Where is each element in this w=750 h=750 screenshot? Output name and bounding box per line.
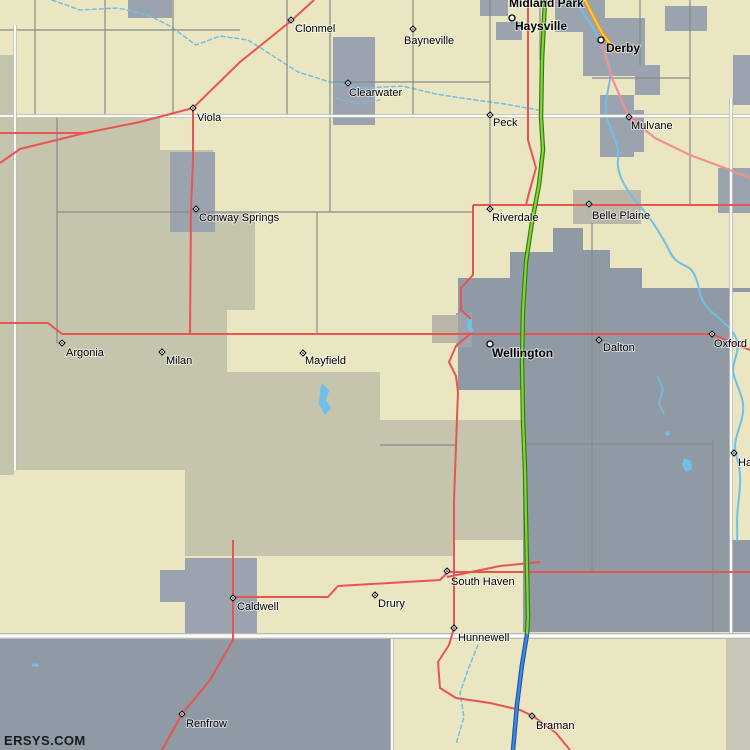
city-label-mulvane: Mulvane bbox=[631, 120, 673, 132]
city-marker-dot-renfrow bbox=[181, 713, 183, 715]
city-marker-dot-clearwater bbox=[347, 82, 349, 84]
city-marker-dot-mayfield bbox=[302, 352, 304, 354]
city-label-mayfield: Mayfield bbox=[305, 355, 346, 367]
city-marker-dot-braman bbox=[531, 715, 533, 717]
region-bottom-right-strip bbox=[726, 637, 750, 750]
city-marker-dot-caldwell bbox=[232, 597, 234, 599]
city-label-south-haven: South Haven bbox=[451, 576, 515, 588]
region-urban-right-edge-north bbox=[733, 55, 750, 105]
city-label-milan: Milan bbox=[166, 355, 192, 367]
city-label-belle-plaine: Belle Plaine bbox=[592, 210, 650, 222]
city-marker-dot-mulvane bbox=[628, 116, 630, 118]
watermark-ersys: ERSYS.COM bbox=[4, 733, 86, 748]
city-label-clonmel: Clonmel bbox=[295, 23, 335, 35]
map-canvas[interactable]: Midland ParkHaysvilleDerbyClonmelBaynevi… bbox=[0, 0, 750, 750]
city-marker-dot-riverdale bbox=[489, 208, 491, 210]
city-marker-dot-belle-plaine bbox=[588, 203, 590, 205]
city-marker-dot-drury bbox=[374, 594, 376, 596]
region-urban-derby-east bbox=[665, 6, 707, 31]
city-label-caldwell: Caldwell bbox=[237, 601, 279, 613]
city-label-midland-park: Midland Park bbox=[509, 0, 584, 10]
city-marker-dot-bayneville bbox=[412, 28, 414, 30]
city-label-riverdale: Riverdale bbox=[492, 212, 538, 224]
city-label-hunnewell: Hunnewell bbox=[458, 632, 509, 644]
map-viewport: Midland ParkHaysvilleDerbyClonmelBaynevi… bbox=[0, 0, 750, 750]
city-label-viola: Viola bbox=[197, 112, 222, 124]
city-label-peck: Peck bbox=[493, 117, 518, 129]
region-urban-udall-corner bbox=[718, 168, 750, 213]
city-marker-dot-peck bbox=[489, 114, 491, 116]
region-urban-caldwell bbox=[185, 558, 257, 640]
city-marker-dot-viola bbox=[192, 107, 194, 109]
city-label-haysville: Haysville bbox=[515, 19, 567, 33]
city-marker-dot-south-haven bbox=[446, 570, 448, 572]
region-urban-junction-tan bbox=[432, 315, 458, 343]
region-beige-right-strip bbox=[731, 292, 750, 540]
city-marker-dot-clonmel bbox=[290, 19, 292, 21]
region-urban-clearwater bbox=[333, 37, 375, 125]
region-urban-derby-south bbox=[635, 65, 660, 95]
region-urban-caldwell-west bbox=[160, 570, 185, 602]
city-marker-dot-dalton bbox=[598, 339, 600, 341]
city-label-wellington: Wellington bbox=[492, 346, 553, 360]
city-marker-dot-conway-springs bbox=[195, 208, 197, 210]
city-marker-dot-ha bbox=[733, 452, 735, 454]
region-urban-haysville-west bbox=[480, 0, 508, 16]
city-label-clearwater: Clearwater bbox=[349, 87, 403, 99]
city-label-ha: Ha bbox=[738, 457, 750, 469]
city-marker-dot-argonia bbox=[61, 342, 63, 344]
city-label-renfrow: Renfrow bbox=[186, 718, 227, 730]
city-label-oxford: Oxford bbox=[714, 338, 747, 350]
city-label-conway-springs: Conway Springs bbox=[199, 212, 280, 224]
city-label-bayneville: Bayneville bbox=[404, 35, 454, 47]
city-marker-derby bbox=[598, 37, 604, 43]
city-marker-dot-oxford bbox=[711, 333, 713, 335]
city-label-drury: Drury bbox=[378, 598, 405, 610]
city-label-derby: Derby bbox=[606, 41, 640, 55]
city-label-dalton: Dalton bbox=[603, 342, 635, 354]
city-label-argonia: Argonia bbox=[66, 347, 105, 359]
city-marker-dot-hunnewell bbox=[453, 627, 455, 629]
city-marker-dot-milan bbox=[161, 351, 163, 353]
city-label-braman: Braman bbox=[536, 720, 575, 732]
